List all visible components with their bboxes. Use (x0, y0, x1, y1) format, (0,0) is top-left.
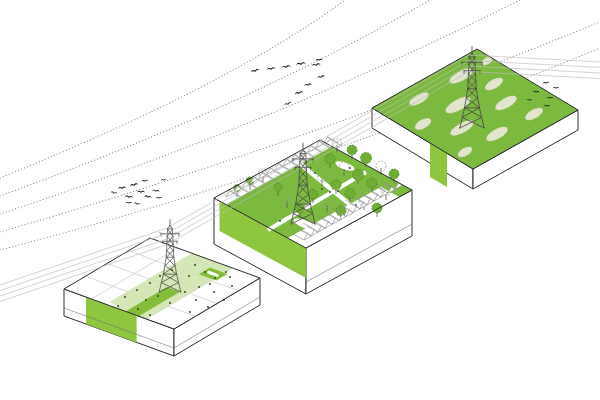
planting-dot (231, 285, 233, 287)
planting-dot (198, 286, 200, 288)
planting-dot (169, 302, 171, 304)
planting-dot (184, 291, 186, 293)
person-dot (349, 167, 351, 169)
tree-crown (353, 170, 364, 181)
planting-dot (209, 283, 211, 285)
planting-dot (213, 291, 215, 293)
planting-dot (157, 295, 159, 297)
planting-dot (188, 275, 190, 277)
tree-crown (331, 180, 341, 190)
planting-dot (124, 296, 126, 298)
tree-crown (309, 190, 318, 199)
axonometric-diagram (0, 0, 600, 400)
planting-dot (229, 276, 231, 278)
planting-dot (195, 299, 197, 301)
tree-crown (347, 145, 357, 155)
planting-dot (159, 275, 161, 277)
person-dot (314, 172, 316, 174)
tree-crown (389, 169, 399, 179)
tree-crown (367, 178, 377, 188)
tree-crown (296, 205, 305, 214)
planting-dot (145, 299, 147, 301)
tree-crown (361, 153, 372, 164)
planting-dot (214, 277, 216, 279)
planting-dot (225, 271, 227, 273)
person-dot (329, 191, 331, 193)
planting-dot (137, 308, 139, 310)
planting-dot (207, 306, 209, 308)
planting-dot (194, 264, 196, 266)
diagram-stage (0, 0, 600, 400)
planting-dot (149, 314, 151, 316)
planting-dot (189, 311, 191, 313)
planting-dot (149, 282, 151, 284)
person-dot (337, 190, 339, 192)
tree-crown (325, 154, 335, 164)
person-dot (321, 188, 323, 190)
planting-dot (204, 271, 206, 273)
person-dot (279, 220, 281, 222)
planting-dot (136, 289, 138, 291)
tree-crown (274, 183, 282, 191)
planting-dot (117, 305, 119, 307)
